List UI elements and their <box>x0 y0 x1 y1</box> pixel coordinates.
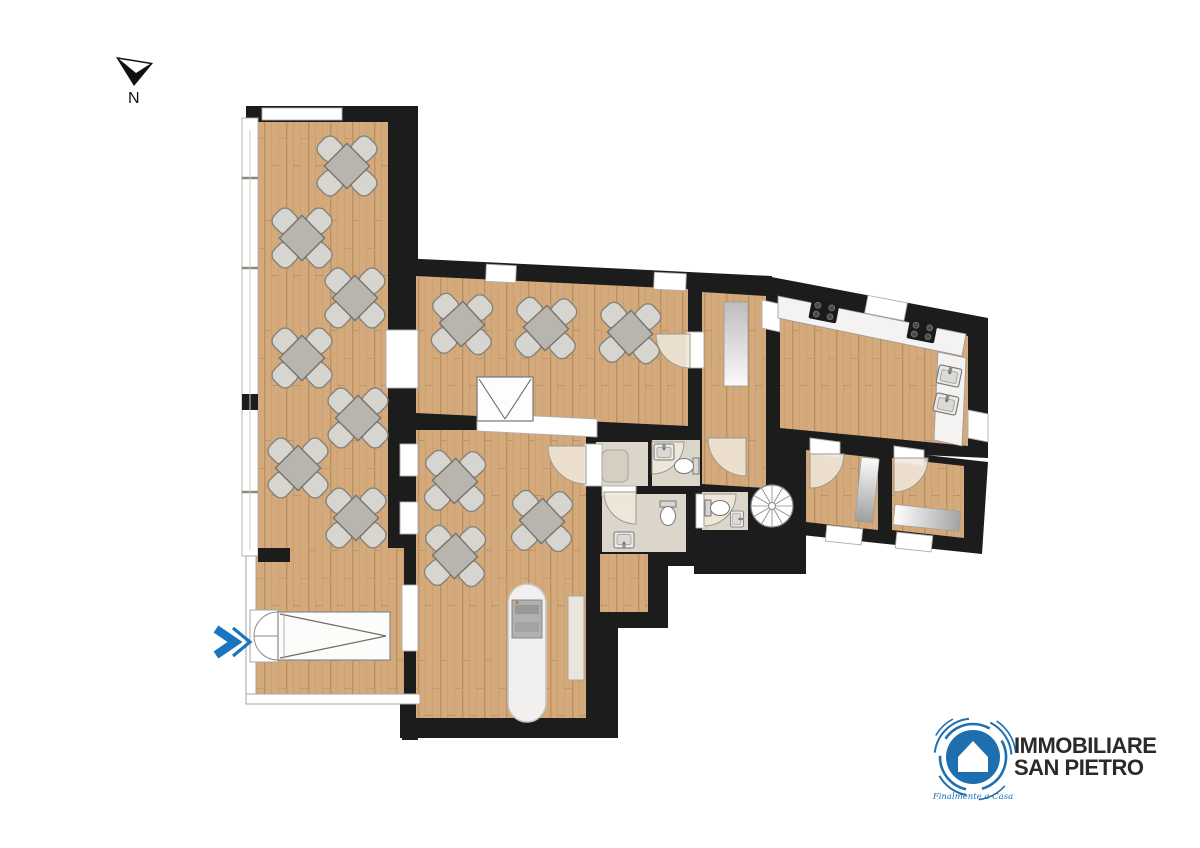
spiral-staircase-icon <box>751 485 793 527</box>
pass-through <box>386 330 418 388</box>
doorway <box>762 300 780 332</box>
dining-table-icon <box>322 265 389 332</box>
entrance-canopy <box>278 612 390 660</box>
sink-icon <box>614 532 634 548</box>
stairs-strip <box>724 302 748 386</box>
dining-table-icon <box>269 325 336 392</box>
window <box>654 272 687 291</box>
dumbwaiter-box <box>477 377 533 421</box>
dining-table-icon <box>323 485 390 552</box>
kitchen-sink-icon <box>933 393 959 416</box>
opening <box>400 444 418 476</box>
compass: N <box>116 57 153 107</box>
floor-plan-page: N IMMOBILIARE SAN PIETRO Finalmente a Ca… <box>0 0 1200 848</box>
window <box>895 532 932 552</box>
sink-icon <box>731 511 744 527</box>
window <box>968 410 988 442</box>
bar-counter <box>508 584 546 722</box>
north-label: N <box>128 90 140 107</box>
opening <box>402 585 418 651</box>
floor-plan-svg: N IMMOBILIARE SAN PIETRO Finalmente a Ca… <box>0 0 1200 848</box>
logo-tagline: Finalmente a Casa <box>932 792 1013 802</box>
entrance <box>216 610 390 662</box>
logo-name-line2: SAN PIETRO <box>1014 755 1144 780</box>
shower-tray <box>602 450 628 482</box>
entrance-chevrons-icon <box>216 628 250 656</box>
toilet-icon <box>675 458 700 474</box>
logo: IMMOBILIARE SAN PIETRO Finalmente a Casa <box>914 698 1156 815</box>
window <box>262 108 342 120</box>
toilet-icon <box>705 500 730 516</box>
wall-pier <box>258 548 290 562</box>
window <box>825 525 862 545</box>
alcove <box>600 554 648 612</box>
wall-shelf <box>568 596 584 680</box>
dining-table-icon <box>325 385 392 452</box>
opening <box>400 502 418 534</box>
kitchen-sink-icon <box>936 365 962 388</box>
dining-table-icon <box>265 435 332 502</box>
dining-table-icon <box>269 205 336 272</box>
dining-table-icon <box>314 133 381 200</box>
sink-icon <box>654 444 674 460</box>
doorway <box>584 444 602 486</box>
window <box>486 264 517 282</box>
toilet-icon <box>660 501 676 526</box>
